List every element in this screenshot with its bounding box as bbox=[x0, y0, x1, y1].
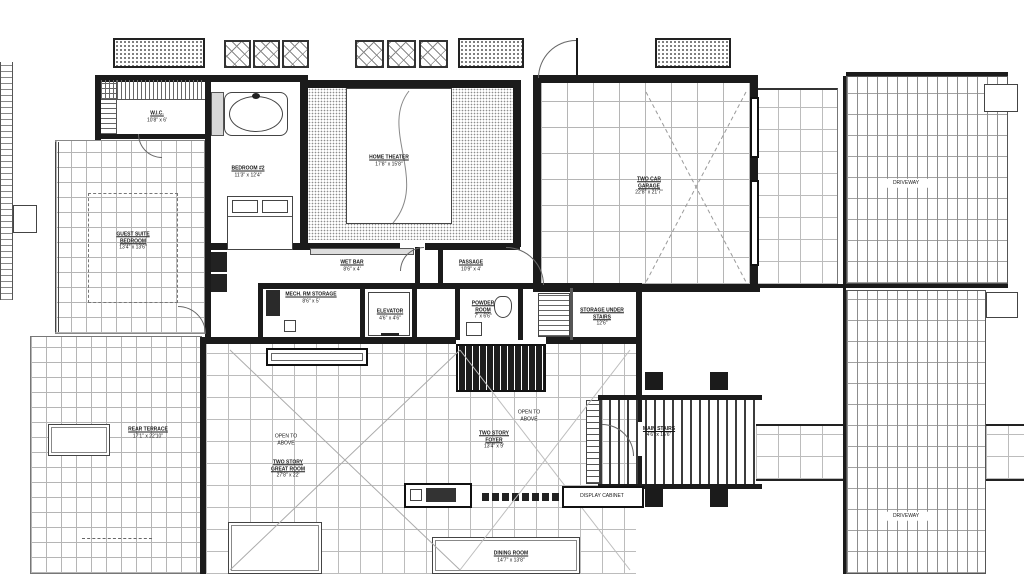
wall bbox=[533, 284, 760, 292]
room-dims: 11'3" x 12'4" bbox=[227, 172, 269, 179]
paver-square-5 bbox=[387, 40, 416, 68]
wall bbox=[518, 286, 523, 340]
annotation: OPEN TO ABOVE bbox=[271, 434, 301, 447]
walk-band-right bbox=[986, 424, 1024, 481]
tub-faucet bbox=[252, 93, 260, 99]
wall bbox=[200, 337, 456, 344]
wall bbox=[750, 75, 758, 97]
wall bbox=[570, 288, 573, 340]
hall-cabinet bbox=[211, 252, 227, 272]
room-name: GUEST SUITE BEDROOM bbox=[113, 231, 153, 244]
terrace-planter bbox=[48, 424, 110, 456]
room-dims: 10'9" x 4' bbox=[449, 266, 493, 273]
room-name: HOME THEATER bbox=[365, 155, 413, 162]
stair-post bbox=[710, 489, 728, 507]
wall bbox=[455, 286, 460, 340]
paver-square-1 bbox=[224, 40, 251, 68]
hall-cabinet bbox=[211, 274, 227, 292]
bed bbox=[227, 196, 293, 250]
wall bbox=[513, 80, 521, 247]
wall bbox=[258, 283, 455, 289]
planter-2 bbox=[458, 38, 524, 68]
room-name: STORAGE UNDER STAIRS bbox=[580, 307, 624, 320]
room-name: MECH. RM STORAGE bbox=[281, 292, 341, 299]
label-rear-terrace: REAR TERRACE 17'1" x 22'10" bbox=[120, 427, 176, 440]
room-dims: 10'8" x 6' bbox=[137, 117, 177, 124]
driveway-top-wall bbox=[846, 72, 1008, 76]
label-storage-under-stairs: STORAGE UNDER STAIRS 12'6" bbox=[580, 307, 624, 327]
wall bbox=[360, 286, 365, 340]
label-home-theater: HOME THEATER 17'8" x 15'8" bbox=[365, 155, 413, 168]
bath-counter bbox=[211, 92, 224, 136]
driveway-notch-2 bbox=[986, 292, 1018, 318]
front-door-swing bbox=[538, 40, 576, 78]
terrace-dashed-line bbox=[82, 538, 152, 539]
wall bbox=[636, 286, 642, 398]
room-dims: 14'7" x 13'8" bbox=[486, 557, 536, 564]
label-driveway-upper: DRIVEWAY bbox=[881, 179, 931, 188]
annotation: DRIVEWAY bbox=[881, 179, 931, 188]
label-wet-bar: WET BAR 8'6" x 4' bbox=[330, 260, 374, 273]
room-name: BEDROOM #2 bbox=[227, 166, 269, 173]
wall bbox=[750, 158, 758, 180]
room-dims: 17'1" x 22'10" bbox=[120, 433, 176, 440]
garage-apron bbox=[756, 88, 838, 284]
room-dims: 8'6" x 5' bbox=[281, 298, 341, 305]
retaining-wall bbox=[756, 284, 1008, 288]
room-dims: 4'6" x 16'6" bbox=[638, 432, 680, 439]
planter-1 bbox=[113, 38, 205, 68]
room-name: TWO STORY FOYER bbox=[475, 430, 513, 443]
paver-square-3 bbox=[282, 40, 309, 68]
room-dims: 7' x 6'6" bbox=[468, 313, 498, 320]
label-dining-room: DINING ROOM 14'7" x 13'8" bbox=[486, 551, 536, 564]
room-dims: 12'6" bbox=[580, 320, 624, 327]
wall bbox=[258, 286, 263, 340]
wall bbox=[305, 80, 520, 88]
room-dims: 27'8" x 22' bbox=[267, 472, 309, 479]
front-door-leaf bbox=[576, 38, 578, 78]
pillow bbox=[262, 200, 288, 213]
stair-post bbox=[710, 372, 728, 390]
wall bbox=[438, 247, 443, 287]
property-line-strip bbox=[0, 62, 13, 300]
room-dims: 22'8" x 21'7" bbox=[631, 189, 667, 196]
wetbar-counter bbox=[310, 248, 414, 255]
label-foyer: TWO STORY FOYER 13'4" x 9' bbox=[475, 430, 513, 450]
window-band bbox=[55, 142, 59, 332]
window-bay bbox=[13, 205, 37, 233]
annotation: OPEN TO ABOVE bbox=[514, 410, 544, 423]
bed-line bbox=[228, 216, 292, 217]
label-great-room: TWO STORY GREAT ROOM 27'8" x 22' bbox=[267, 459, 309, 479]
stair-post bbox=[645, 489, 663, 507]
annotation: DRIVEWAY bbox=[881, 512, 931, 521]
mech-equipment-2 bbox=[284, 320, 296, 332]
wall bbox=[546, 337, 642, 344]
label-bedroom-2: BEDROOM #2 11'3" x 12'4" bbox=[227, 166, 269, 179]
powder-sink bbox=[466, 322, 482, 336]
label-main-stairs: MAIN STAIRS 4'6" x 16'6" bbox=[638, 419, 680, 445]
wall bbox=[300, 75, 308, 247]
label-open-to-above-1: OPEN TO ABOVE bbox=[271, 434, 301, 447]
label-wic: W.I.C. 10'8" x 6' bbox=[137, 111, 177, 124]
label-mech-storage: MECH. RM STORAGE 8'6" x 5' bbox=[281, 292, 341, 305]
paver-square-6 bbox=[419, 40, 448, 68]
walk-band-left bbox=[756, 424, 846, 481]
room-dims: 13'4" x 13'6" bbox=[113, 244, 153, 251]
wall bbox=[750, 266, 758, 292]
garage-door-1 bbox=[750, 97, 759, 158]
label-guest-suite: GUEST SUITE BEDROOM 13'4" x 13'6" bbox=[113, 231, 153, 251]
basement-stairs bbox=[538, 293, 570, 337]
driveway-edge-wall bbox=[843, 76, 846, 574]
label-driveway-lower: DRIVEWAY bbox=[881, 512, 931, 521]
wall bbox=[412, 286, 417, 340]
paver-square-2 bbox=[253, 40, 280, 68]
label-powder-room: POWDER ROOM 7' x 6'6" bbox=[468, 300, 498, 320]
bathtub bbox=[229, 96, 283, 132]
stair-post bbox=[645, 372, 663, 390]
room-name: POWDER ROOM bbox=[468, 300, 498, 313]
pillow bbox=[232, 200, 258, 213]
floor-plan: W.I.C. 10'8" x 6' BEDROOM #2 11'3" x 12'… bbox=[0, 0, 1024, 574]
room-name: TWO CAR GARAGE bbox=[631, 176, 667, 189]
garage-door-2 bbox=[750, 180, 759, 266]
closet-shelf-hatch bbox=[101, 80, 117, 134]
planter-3 bbox=[655, 38, 731, 68]
label-open-to-above-2: OPEN TO ABOVE bbox=[514, 410, 544, 423]
elevator-door bbox=[381, 333, 399, 336]
annotation: DISPLAY CABINET bbox=[562, 493, 642, 500]
wall bbox=[200, 337, 206, 574]
driveway-notch bbox=[984, 84, 1018, 112]
mech-equipment bbox=[266, 290, 280, 316]
room-name: REAR TERRACE bbox=[120, 427, 176, 434]
room-dims: 8'6" x 4' bbox=[330, 266, 374, 273]
room-name: TWO STORY GREAT ROOM bbox=[267, 459, 309, 472]
label-garage: TWO CAR GARAGE 22'8" x 21'7" bbox=[631, 176, 667, 196]
driveway-lower bbox=[846, 290, 986, 574]
room-dims: 13'4" x 9' bbox=[475, 443, 513, 450]
label-display-cabinet: DISPLAY CABINET bbox=[562, 493, 642, 500]
room-dims: 4'6" x 4'6" bbox=[370, 315, 410, 322]
room-dims: 17'8" x 15'8" bbox=[365, 161, 413, 168]
paver-square-4 bbox=[355, 40, 384, 68]
label-passage: PASSAGE 10'9" x 4' bbox=[449, 260, 493, 273]
label-elevator: ELEVATOR 4'6" x 4'6" bbox=[370, 309, 410, 322]
